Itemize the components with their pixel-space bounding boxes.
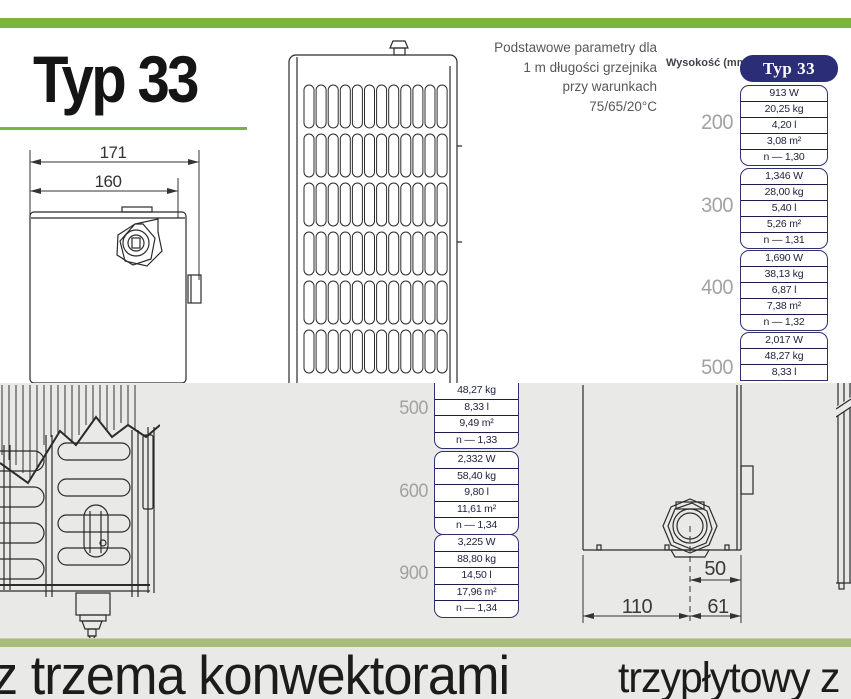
spec-value: 2,332 W (435, 452, 518, 468)
spec-value: 913 W (741, 86, 827, 101)
partial-right-drawing (836, 383, 851, 595)
spec-value: 4,20 l (741, 117, 827, 133)
spec-value: 14,50 l (435, 567, 518, 584)
datasheet-page: Typ 33 171 160 Podstawowe parame (0, 0, 851, 699)
spec-box-200: 913 W 20,25 kg 4,20 l 3,08 m² n — 1,30 (740, 85, 828, 166)
spec-value: n — 1,34 (435, 517, 518, 534)
spec-box-600: 2,332 W 58,40 kg 9,80 l 11,61 m² n — 1,3… (434, 451, 519, 535)
height-label-400: 400 (695, 276, 733, 300)
spec-box-500-top: 2,017 W 48,27 kg 8,33 l (740, 332, 828, 381)
height-label-500: 500 (695, 356, 733, 380)
spec-value: 20,25 kg (741, 101, 827, 117)
spec-box-500-bottom: 48,27 kg 8,33 l 9,49 m² n — 1,33 (434, 383, 519, 449)
parameters-line: 1 m długości grzejnika (455, 58, 657, 78)
parameters-line: przy warunkach (455, 77, 657, 97)
dim-label-61: 61 (698, 596, 738, 619)
spec-value: 38,13 kg (741, 266, 827, 282)
dim-label-110: 110 (610, 596, 664, 619)
dim-label-171: 171 (83, 143, 143, 163)
spec-value: 48,27 kg (435, 383, 518, 399)
spec-value: 1,346 W (741, 169, 827, 184)
spec-value: 5,26 m² (741, 216, 827, 232)
spec-value: 7,38 m² (741, 298, 827, 314)
spec-value: 28,00 kg (741, 184, 827, 200)
spec-value: n — 1,34 (435, 600, 518, 617)
caption-right: trzypłytowy z (618, 656, 839, 699)
spec-value: 11,61 m² (435, 501, 518, 518)
page-title: Typ 33 (33, 40, 197, 119)
spec-box-900: 3,225 W 88,80 kg 14,50 l 17,96 m² n — 1,… (434, 534, 519, 618)
spec-value: 2,017 W (741, 333, 827, 348)
height-column-header: Wysokość (mm) (666, 57, 750, 69)
spec-box-300: 1,346 W 28,00 kg 5,40 l 5,26 m² n — 1,31 (740, 168, 828, 249)
caption-left: z trzema konwektorami (0, 647, 509, 699)
height-label-200: 200 (695, 111, 733, 135)
spec-box-400: 1,690 W 38,13 kg 6,87 l 7,38 m² n — 1,32 (740, 250, 828, 331)
spec-value: 1,690 W (741, 251, 827, 266)
height-label-900: 900 (390, 563, 428, 585)
radiator-cross-section-drawing (0, 385, 160, 643)
spec-value: 17,96 m² (435, 584, 518, 601)
spec-value: n — 1,30 (741, 149, 827, 165)
height-label-600: 600 (390, 481, 428, 503)
parameters-note: Podstawowe parametry dla 1 m długości gr… (455, 38, 657, 116)
spec-value: 6,87 l (741, 282, 827, 298)
spec-value: 8,33 l (741, 364, 827, 380)
dim-label-160: 160 (78, 172, 138, 192)
parameters-line: 75/65/20°C (455, 97, 657, 117)
spec-value: 58,40 kg (435, 468, 518, 485)
spec-value: n — 1,32 (741, 314, 827, 330)
height-label-500b: 500 (390, 398, 428, 420)
top-green-bar (0, 18, 851, 28)
spec-value: n — 1,31 (741, 232, 827, 248)
spec-value: 48,27 kg (741, 348, 827, 364)
title-underline (0, 127, 247, 130)
dim-label-50: 50 (697, 558, 733, 581)
parameters-line: Podstawowe parametry dla (455, 38, 657, 58)
spec-value: 9,49 m² (435, 415, 518, 432)
spec-value: 3,08 m² (741, 133, 827, 149)
type-header-badge: Typ 33 (740, 55, 838, 82)
spec-value: 9,80 l (435, 484, 518, 501)
radiator-bottom-view-drawing (575, 383, 760, 628)
radiator-front-view-drawing (282, 38, 462, 383)
spec-value: 88,80 kg (435, 551, 518, 568)
height-label-300: 300 (695, 194, 733, 218)
spec-value: 5,40 l (741, 200, 827, 216)
spec-value: 3,225 W (435, 535, 518, 551)
spec-value: 8,33 l (435, 399, 518, 416)
spec-value: n — 1,33 (435, 432, 518, 449)
